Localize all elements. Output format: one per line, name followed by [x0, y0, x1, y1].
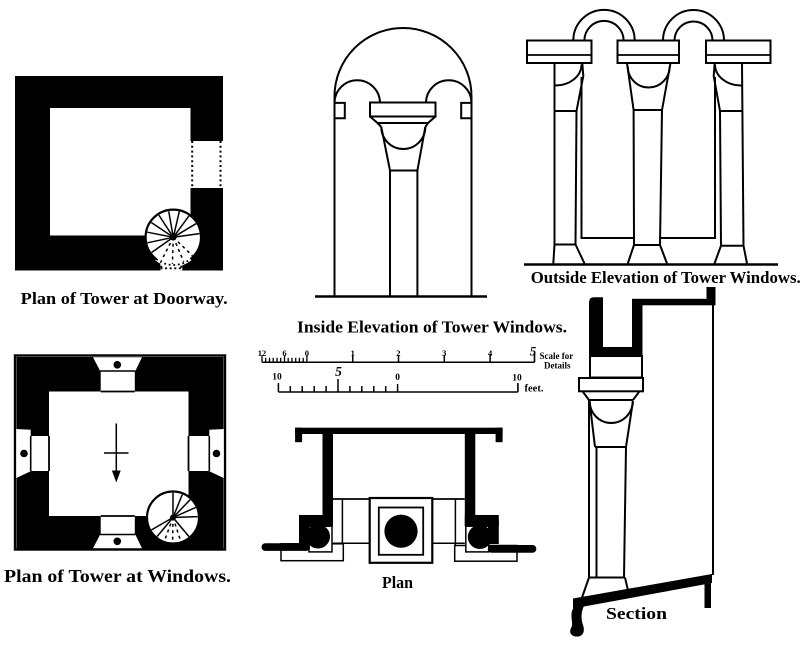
svg-text:Plan of Tower at Windows.: Plan of Tower at Windows.: [4, 566, 231, 586]
svg-text:Plan: Plan: [382, 573, 413, 592]
svg-text:5: 5: [530, 344, 537, 359]
svg-text:0: 0: [305, 348, 309, 358]
svg-text:Plan of Tower at Doorway.: Plan of Tower at Doorway.: [21, 289, 228, 308]
svg-text:Section: Section: [606, 604, 668, 623]
svg-text:5: 5: [335, 364, 342, 379]
svg-text:Outside Elevation of Tower Win: Outside Elevation of Tower Windows.: [531, 268, 801, 287]
svg-text:0: 0: [395, 373, 400, 383]
svg-text:Scale for: Scale for: [540, 351, 574, 361]
svg-text:4: 4: [488, 348, 493, 358]
svg-text:feet.: feet.: [525, 384, 544, 395]
svg-text:2: 2: [396, 348, 400, 358]
svg-text:10: 10: [512, 374, 522, 384]
svg-text:3: 3: [442, 348, 446, 358]
svg-text:1: 1: [351, 348, 355, 358]
svg-text:6: 6: [282, 348, 286, 358]
svg-text:10: 10: [272, 373, 282, 383]
svg-text:Details: Details: [544, 361, 571, 371]
svg-text:Inside Elevation of Tower Wind: Inside Elevation of Tower Windows.: [297, 318, 567, 337]
svg-text:12: 12: [258, 348, 267, 358]
